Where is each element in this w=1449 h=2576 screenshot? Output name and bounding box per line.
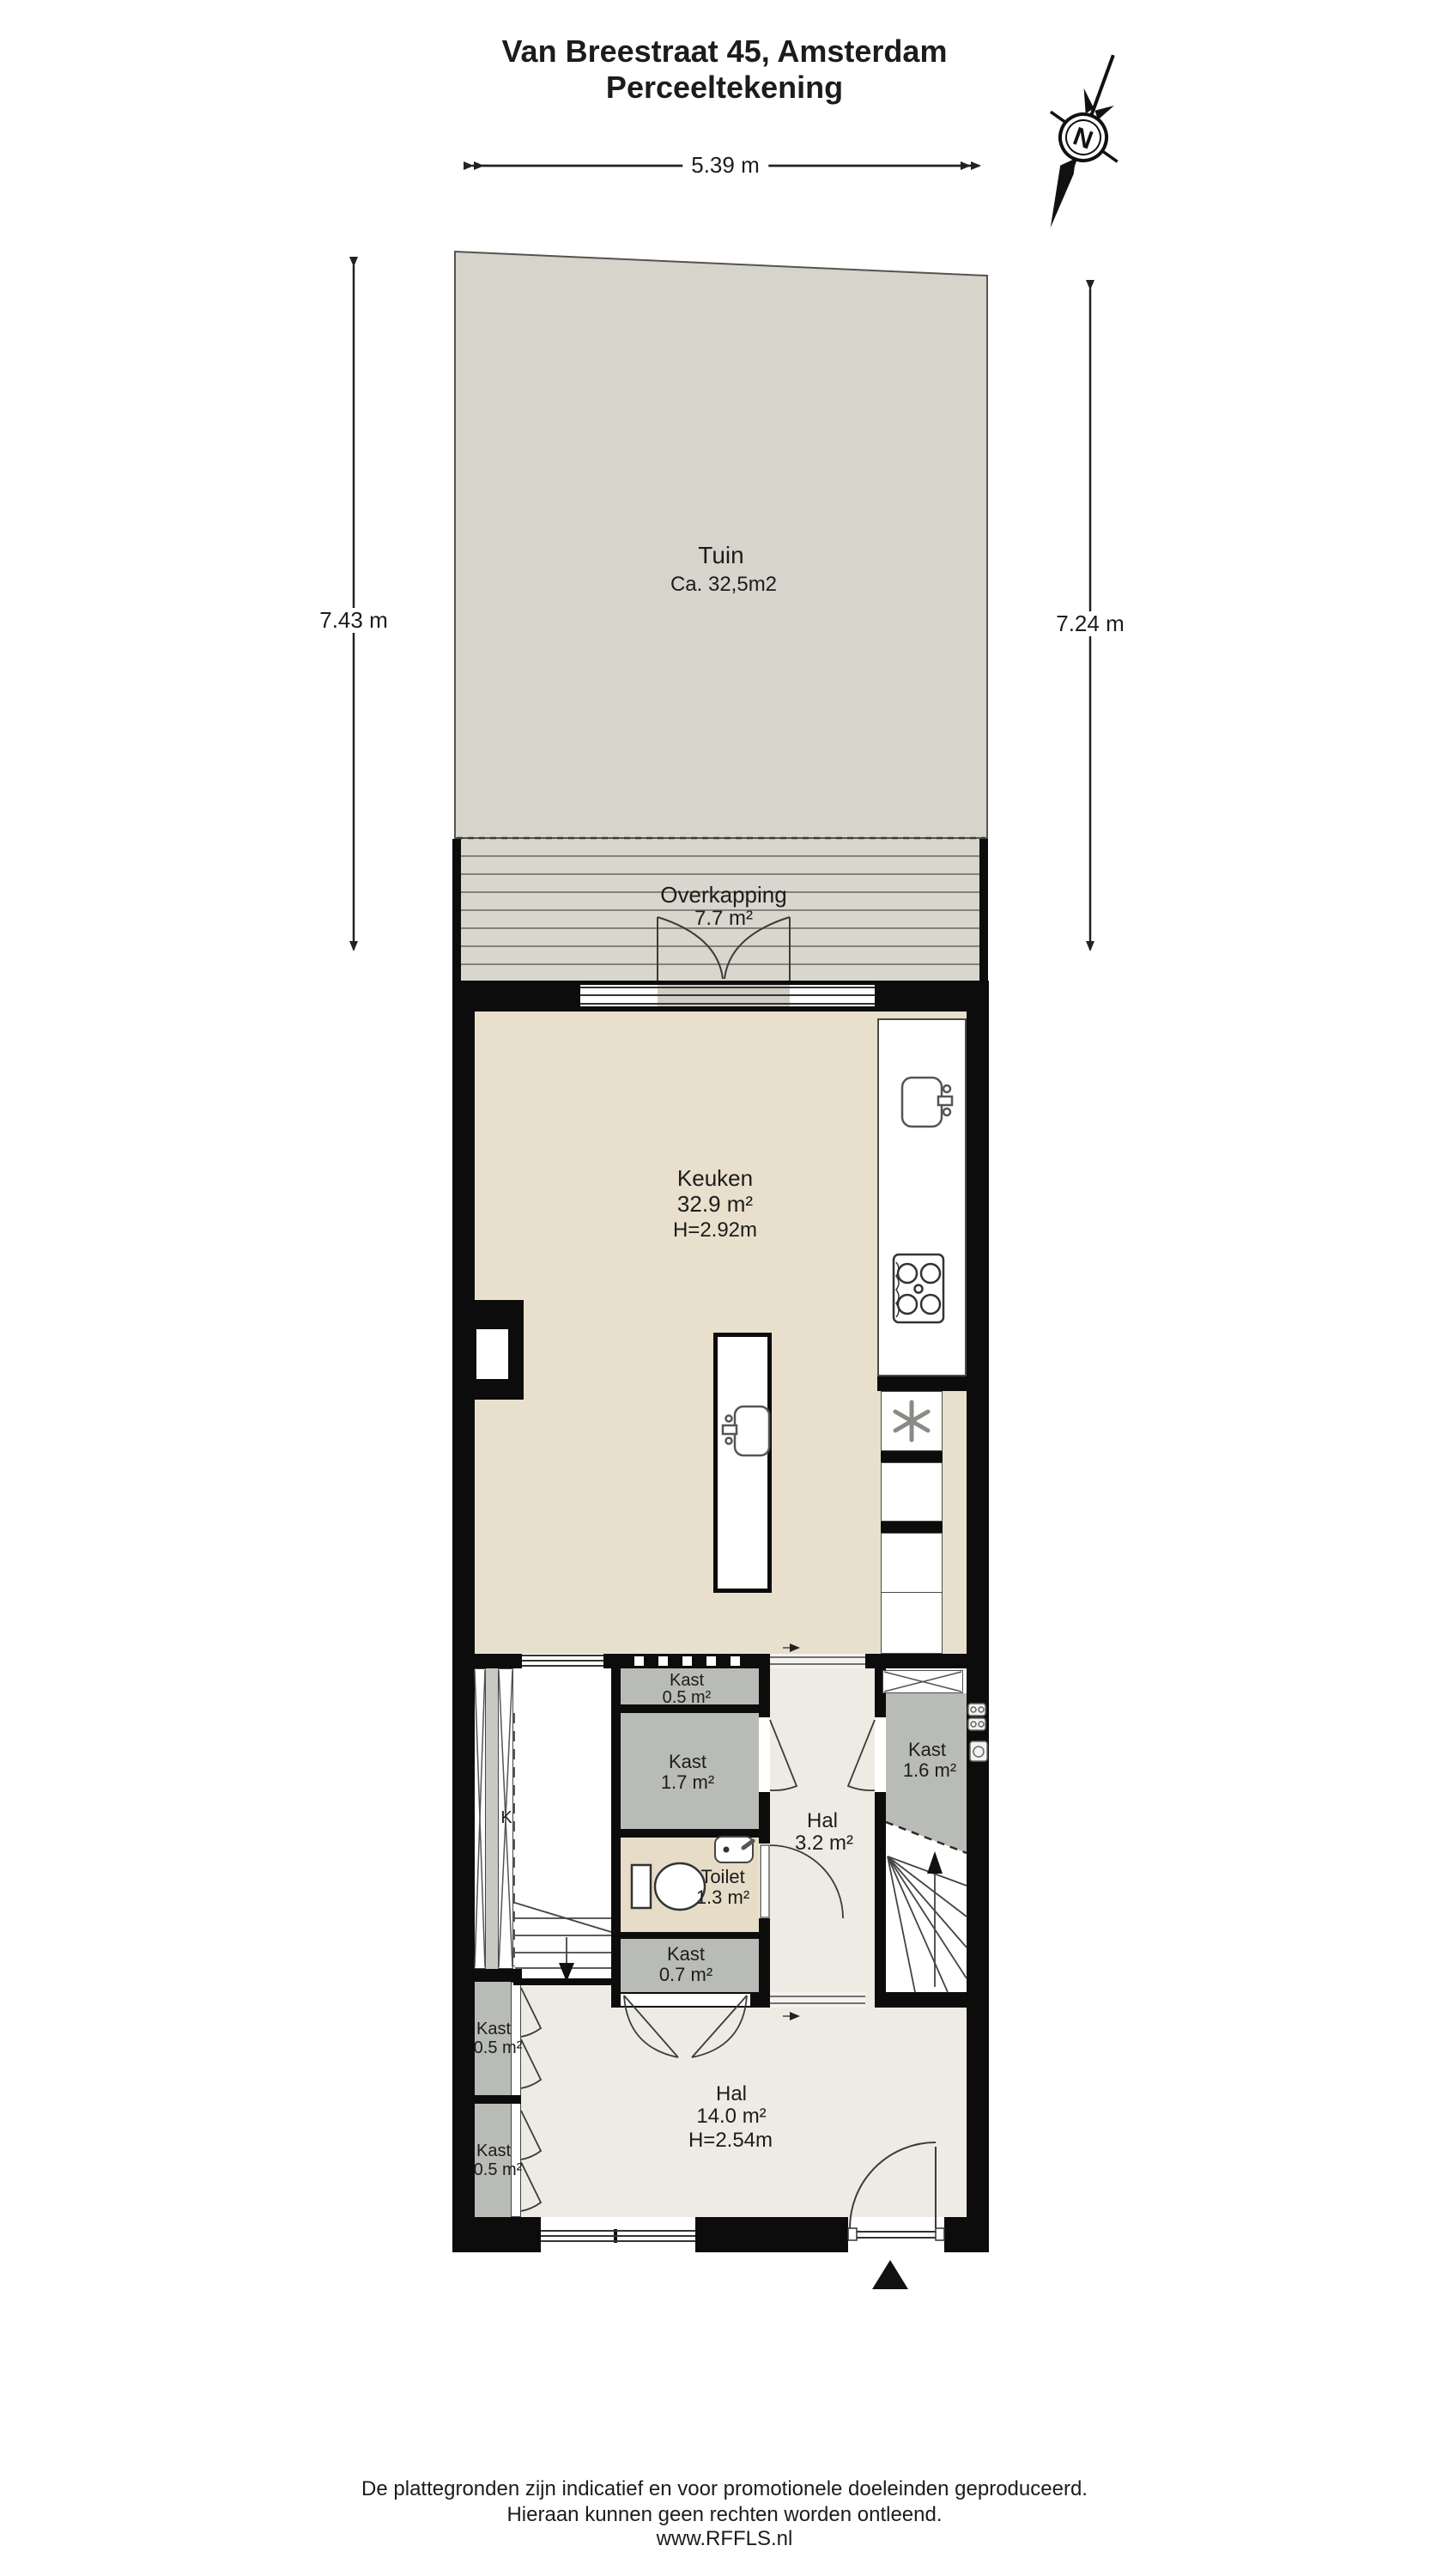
tuin-label: Tuin (698, 543, 743, 569)
kast-07-area: 0.7 m² (659, 1965, 712, 1985)
tuin-area: Ca. 32,5m2 (670, 574, 777, 596)
utility-meters-icons (968, 1704, 987, 1761)
floorplan-page: Van Breestraat 45, Amsterdam Perceelteke… (0, 0, 1449, 2576)
hal-beneden-area: 14.0 m² (696, 2105, 766, 2128)
door-jamb-right (936, 2228, 944, 2240)
island-sink-icon (723, 1406, 769, 1455)
kast-links-1-area: 0.5 m² (474, 2038, 523, 2057)
door-jamb-left (848, 2228, 857, 2240)
toilet-label: Toilet (700, 1867, 744, 1887)
vent-asterisk-icon (895, 1402, 928, 1440)
page-title-line2: Perceeltekening (606, 70, 843, 105)
staircase-down (514, 1713, 611, 1982)
kast-links-2-area: 0.5 m² (474, 2160, 523, 2179)
staircase-up (888, 1851, 967, 1992)
hal-beneden-label: Hal (716, 2083, 747, 2105)
dimension-top: 5.39 m (682, 153, 768, 178)
kast-16-label: Kast (908, 1740, 946, 1760)
kast-07-label: Kast (667, 1944, 705, 1965)
kast-16-area: 1.6 m² (903, 1760, 956, 1781)
kast-05-area: 0.5 m² (663, 1688, 712, 1707)
overkapping-area: 7.7 m² (694, 908, 753, 930)
page-title-line1: Van Breestraat 45, Amsterdam (502, 34, 948, 69)
kast-17-label: Kast (669, 1752, 706, 1772)
kitchen-sink-icon (902, 1078, 952, 1127)
washbasin-icon (715, 1837, 753, 1862)
k-label: K (500, 1808, 512, 1827)
dimension-right: 7.24 m (1047, 611, 1133, 636)
overkapping-label: Overkapping (660, 883, 786, 908)
kast-links-2-label: Kast (476, 2142, 511, 2160)
keuken-height: H=2.92m (673, 1219, 757, 1242)
dimension-left: 7.43 m (311, 608, 397, 633)
toilet-icon (632, 1863, 705, 1910)
keuken-label: Keuken (677, 1166, 753, 1191)
front-door (850, 2142, 936, 2228)
footer-line1: De plattegronden zijn indicatief en voor… (361, 2478, 1088, 2500)
toilet-area: 1.3 m² (696, 1887, 749, 1908)
stove-icon (894, 1255, 943, 1322)
hal-beneden-height: H=2.54m (688, 2129, 773, 2152)
footer-line2: Hieraan kunnen geen rechten worden ontle… (506, 2504, 942, 2526)
keuken-area: 32.9 m² (677, 1192, 753, 1217)
kast-05-label: Kast (670, 1671, 704, 1690)
kast-17-area: 1.7 m² (661, 1772, 714, 1793)
plan-linework: N (0, 0, 1449, 2576)
entrance-arrow (872, 2260, 908, 2289)
footer-line3: www.RFFLS.nl (657, 2528, 793, 2550)
hal-boven-label: Hal (807, 1810, 838, 1832)
hal-boven-area: 3.2 m² (795, 1832, 853, 1855)
compass-north-icon: N (1013, 41, 1151, 241)
kast-links-1-label: Kast (476, 2020, 511, 2038)
